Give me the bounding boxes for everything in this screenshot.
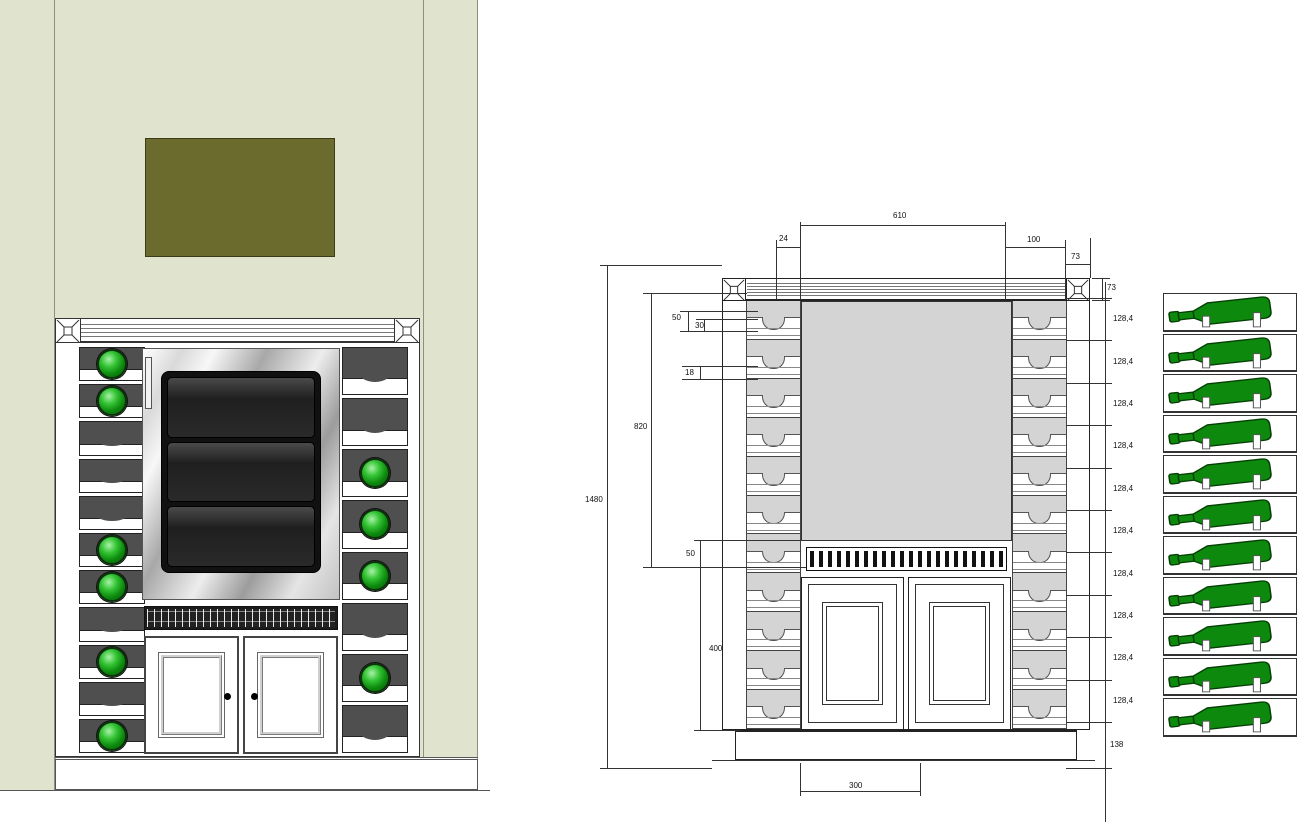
dim-line-overall-height	[607, 265, 608, 768]
rack-support-tab	[1203, 397, 1210, 408]
dim-right-inset: 100	[1027, 235, 1040, 244]
bottle-cradle-profile	[747, 573, 800, 590]
bottle-cradle-profile	[747, 457, 800, 474]
dim-slot-pitch: 128,4	[1113, 484, 1133, 493]
dim-corner-width: 73	[1071, 252, 1080, 261]
dim-line-panel-width	[800, 225, 1005, 226]
dim-extension	[800, 222, 801, 300]
shelf-lines	[1013, 445, 1066, 455]
wine-bottle-side	[1164, 294, 1296, 330]
shelf-lines	[1013, 406, 1066, 416]
rack-slot-profile	[1013, 651, 1066, 690]
rack-support-tab	[1203, 519, 1210, 530]
rack-support-tab	[1253, 637, 1260, 651]
rack-support-tab	[1203, 438, 1210, 449]
wall-panel-line-right	[423, 0, 424, 790]
rack-slot-empty	[342, 705, 408, 753]
dim-extension	[643, 567, 806, 568]
rack-support-tab	[1253, 434, 1260, 448]
dim-extension	[682, 379, 758, 380]
tv-chrome-frame	[142, 348, 340, 600]
drawing-door-right	[908, 577, 1011, 730]
dim-extension	[680, 331, 758, 332]
shelf-lines	[747, 678, 800, 688]
rack-slot-empty	[342, 398, 408, 446]
shelf-lines	[1013, 328, 1066, 338]
dim-extension	[696, 319, 758, 320]
bottle-cradle-profile	[747, 651, 800, 668]
drawing-plinth	[735, 730, 1077, 760]
rack-slot-with-bottle	[342, 449, 408, 497]
bottle-slot	[1163, 617, 1297, 656]
render-right-rack	[342, 347, 408, 753]
dim-tick	[1066, 768, 1112, 769]
wine-bottle-front	[360, 663, 390, 693]
bottle-cradle-profile	[1013, 534, 1066, 551]
dim-tick	[1066, 510, 1112, 511]
dim-panel-width: 610	[893, 211, 906, 220]
bottle-cradle-profile	[1013, 496, 1066, 513]
shelf-lines	[1013, 484, 1066, 494]
shelf-lines	[1013, 523, 1066, 533]
bottle-slot	[1163, 415, 1297, 454]
wine-bottle-front	[360, 458, 390, 488]
drawing-canvas: 610 24 100 73 73 1480 820 50 30 18 50 40…	[0, 0, 1300, 824]
drawing-door-panel	[929, 602, 990, 705]
screen-panel	[167, 377, 315, 438]
dim-detail-18: 18	[685, 368, 694, 377]
rack-support-tab	[1203, 681, 1210, 692]
bottle-cradle-profile	[1013, 612, 1066, 629]
bottle-cradle-profile	[1013, 340, 1066, 357]
cornice	[55, 318, 420, 342]
wine-cabinet-render	[55, 318, 420, 790]
wine-bottle-front	[97, 535, 127, 565]
dim-base-height: 138	[1110, 740, 1123, 749]
rack-slot-with-bottle	[342, 654, 408, 702]
drawing-cornice	[722, 278, 1090, 300]
rack-slot-profile	[1013, 457, 1066, 496]
rack-slot-profile	[747, 573, 800, 612]
dim-line-grille-height	[700, 540, 701, 567]
screen-panel	[167, 506, 315, 567]
door-panel	[158, 652, 225, 738]
rack-support-tab	[1253, 353, 1260, 367]
bottle-slot	[1163, 698, 1297, 737]
dim-corner-height: 73	[1107, 283, 1116, 292]
dim-tick	[1066, 383, 1112, 384]
rack-slot-profile	[1013, 340, 1066, 379]
rack-support-tab	[1203, 722, 1210, 733]
rack-support-tab	[1203, 316, 1210, 327]
rack-slot-profile	[747, 496, 800, 535]
rack-slot-profile	[747, 690, 800, 729]
corner-rosette-icon	[722, 278, 746, 302]
dim-detail-50: 50	[672, 313, 681, 322]
wine-bottle-side	[1164, 416, 1296, 452]
rack-slot-profile	[747, 651, 800, 690]
rack-support-tab	[1253, 394, 1260, 408]
wine-bottle-side	[1164, 375, 1296, 411]
wine-bottle-side	[1164, 699, 1296, 735]
rack-support-tab	[1253, 596, 1260, 610]
rack-slot-empty	[79, 421, 145, 455]
shelf-lines	[747, 406, 800, 416]
rack-support-tab	[1253, 678, 1260, 692]
dim-detail-30: 30	[695, 321, 704, 330]
wine-bottle-side	[1164, 497, 1296, 533]
dim-extension	[1065, 240, 1066, 300]
dim-line-corner-width	[1066, 264, 1090, 265]
bottle-cradle-profile	[1013, 379, 1066, 396]
dim-slot-pitch: 128,4	[1113, 611, 1133, 620]
shelf-lines	[1013, 367, 1066, 377]
dim-slot-pitch: 128,4	[1113, 569, 1133, 578]
dim-tick	[1066, 595, 1112, 596]
dim-line-corner-height	[1102, 278, 1103, 300]
wine-bottle-side	[1164, 659, 1296, 695]
wall-picture	[145, 138, 335, 257]
dim-slot-pitch: 128,4	[1113, 399, 1133, 408]
wine-bottle-front	[97, 721, 127, 751]
drawing-grille-slats	[810, 551, 1003, 567]
rack-slot-with-bottle	[342, 500, 408, 548]
shelf-lines	[747, 523, 800, 533]
wine-bottle-front	[97, 647, 127, 677]
rack-slot-profile	[1013, 534, 1066, 573]
shelf-lines	[747, 717, 800, 727]
rack-slot-with-bottle	[79, 384, 145, 418]
dim-tick	[1066, 552, 1112, 553]
door-knob	[224, 693, 231, 700]
rack-slot-with-bottle	[342, 552, 408, 600]
rack-slot-profile	[1013, 418, 1066, 457]
bottle-cradle-profile	[747, 496, 800, 513]
drawing-door-left	[801, 577, 904, 730]
bottle-cradle-profile	[1013, 651, 1066, 668]
rack-support-tab	[1253, 313, 1260, 327]
rack-slot-profile	[1013, 573, 1066, 612]
dim-extension	[694, 730, 740, 731]
dim-tick	[1066, 340, 1112, 341]
shelf-lines	[1013, 678, 1066, 688]
shelf-lines	[747, 600, 800, 610]
drawing-doors	[801, 577, 1012, 730]
dim-door-width: 300	[849, 781, 862, 790]
floor-line	[0, 790, 490, 791]
rack-slot-empty	[79, 682, 145, 716]
wine-bottle-front	[97, 349, 127, 379]
rack-slot-profile	[1013, 690, 1066, 729]
bottle-cradle-profile	[747, 690, 800, 707]
rack-support-tab	[1253, 515, 1260, 529]
dim-line-right-inset	[1005, 247, 1065, 248]
wine-bottle-side	[1164, 335, 1296, 371]
dim-door-height: 400	[709, 644, 722, 653]
tv-handle	[145, 357, 152, 409]
drawing-cornice-moulding	[747, 281, 1065, 297]
dim-tick	[1066, 637, 1112, 638]
rack-slot-profile	[747, 379, 800, 418]
rack-slot-profile	[1013, 379, 1066, 418]
rack-support-tab	[1203, 600, 1210, 611]
bottle-cradle-profile	[1013, 573, 1066, 590]
rack-slot-empty	[79, 607, 145, 641]
wine-bottle-front	[360, 561, 390, 591]
dim-tick	[1066, 468, 1112, 469]
dim-tick	[1066, 425, 1112, 426]
rack-slot-with-bottle	[79, 570, 145, 604]
dim-extension	[600, 768, 712, 769]
rack-slot-profile	[1013, 301, 1066, 340]
wine-bottle-front	[360, 509, 390, 539]
bottle-cradle-profile	[1013, 418, 1066, 435]
shelf-lines	[747, 367, 800, 377]
rack-slot-empty	[79, 459, 145, 493]
bottle-cradle-profile	[747, 418, 800, 435]
tv-screen	[161, 371, 321, 573]
dim-upper-height: 820	[634, 422, 647, 431]
dim-line-door-width	[800, 791, 920, 792]
dim-tick	[1066, 722, 1112, 723]
door-knob	[251, 693, 258, 700]
dim-extension	[1090, 238, 1091, 278]
rack-support-tab	[1253, 475, 1260, 489]
bottle-slot	[1163, 658, 1297, 697]
dim-line-detail-18	[700, 366, 701, 379]
shelf-lines	[747, 445, 800, 455]
dim-line-detail-30	[704, 319, 705, 331]
dim-overall-height: 1480	[585, 495, 603, 504]
cabinet-body	[55, 342, 420, 757]
bottle-slot	[1163, 293, 1297, 332]
rack-slot-profile	[1013, 496, 1066, 535]
rendered-elevation	[0, 0, 500, 824]
rack-slot-profile	[747, 418, 800, 457]
corner-rosette-icon	[394, 318, 420, 344]
shelf-lines	[747, 484, 800, 494]
bottle-cradle-profile	[1013, 301, 1066, 318]
wine-bottle-side	[1164, 578, 1296, 614]
rack-slot-with-bottle	[79, 719, 145, 753]
shelf-lines	[1013, 562, 1066, 572]
drawing-vent-grille	[806, 547, 1007, 571]
dim-slot-pitch: 128,4	[1113, 314, 1133, 323]
rack-support-tab	[1203, 357, 1210, 368]
corner-rosette-icon	[55, 318, 81, 344]
dim-extension	[776, 240, 777, 300]
render-left-rack	[79, 347, 145, 753]
wine-bottle-side	[1164, 456, 1296, 492]
dim-line-door-height	[700, 567, 701, 730]
dim-line-upper-height	[651, 293, 652, 567]
bottle-slot	[1163, 536, 1297, 575]
dim-extension	[680, 311, 758, 312]
cabinet-door-left	[144, 636, 239, 754]
rack-slot-empty	[342, 603, 408, 651]
rack-slot-with-bottle	[79, 645, 145, 679]
rack-support-tab	[1203, 478, 1210, 489]
drawing-door-panel	[822, 602, 883, 705]
dim-grille-height: 50	[686, 549, 695, 558]
bottle-slot	[1163, 334, 1297, 373]
rack-support-tab	[1203, 559, 1210, 570]
drawing-right-rack	[1012, 301, 1067, 729]
dim-slot-pitch: 128,4	[1113, 357, 1133, 366]
wine-bottle-front	[97, 386, 127, 416]
dim-extension	[920, 763, 921, 796]
dim-extension	[1092, 278, 1110, 279]
dim-extension	[1092, 300, 1110, 301]
shelf-lines	[1013, 639, 1066, 649]
rack-slot-profile	[747, 457, 800, 496]
dim-slot-pitch: 128,4	[1113, 696, 1133, 705]
drawing-cabinet	[722, 278, 1090, 760]
rack-slot-with-bottle	[79, 533, 145, 567]
drawing-baseline	[712, 760, 1095, 761]
bottle-cradle-profile	[1013, 690, 1066, 707]
cornice-moulding	[80, 321, 395, 339]
dim-slot-pitch: 128,4	[1113, 653, 1133, 662]
bottle-cradle-profile	[747, 379, 800, 396]
drawing-tv-opening	[801, 301, 1012, 541]
shelf-lines	[747, 328, 800, 338]
rack-slot-profile	[747, 612, 800, 651]
dim-extension	[643, 293, 747, 294]
rack-support-tab	[1253, 556, 1260, 570]
dim-extension	[600, 265, 722, 266]
dim-line-detail-50	[688, 311, 689, 331]
wine-bottle-side	[1164, 618, 1296, 654]
rack-slot-profile	[747, 301, 800, 340]
cabinet-door-right	[243, 636, 338, 754]
dim-tick	[1066, 298, 1112, 299]
rack-slot-empty	[342, 347, 408, 395]
bottle-cradle-profile	[1013, 457, 1066, 474]
shelf-lines	[1013, 717, 1066, 727]
bottle-cradle-profile	[747, 340, 800, 357]
rack-slot-empty	[79, 496, 145, 530]
dim-left-gap: 24	[779, 234, 788, 243]
dim-tick	[1066, 680, 1112, 681]
dim-slot-pitch: 128,4	[1113, 526, 1133, 535]
rack-support-tab	[1203, 641, 1210, 652]
cabinet-doors	[144, 636, 338, 754]
bottle-rack-detail	[1163, 293, 1297, 737]
shelf-lines	[1013, 600, 1066, 610]
bottle-cradle-profile	[747, 612, 800, 629]
bottle-cradle-profile	[747, 301, 800, 318]
dim-slot-pitch: 128,4	[1113, 441, 1133, 450]
dim-line-left-gap	[776, 247, 800, 248]
rack-slot-profile	[747, 340, 800, 379]
bottle-slot	[1163, 374, 1297, 413]
bottle-slot	[1163, 496, 1297, 535]
wine-bottle-front	[97, 572, 127, 602]
dim-extension	[682, 366, 758, 367]
drawing-cabinet-body	[722, 300, 1090, 730]
rack-slot-with-bottle	[79, 347, 145, 381]
bottle-cradle-profile	[747, 534, 800, 551]
dim-extension	[694, 540, 806, 541]
bottle-slot	[1163, 577, 1297, 616]
plinth	[55, 757, 478, 790]
shelf-lines	[747, 639, 800, 649]
vent-grille	[144, 606, 338, 630]
rack-slot-profile	[1013, 612, 1066, 651]
dim-extension	[1005, 222, 1006, 300]
wine-bottle-side	[1164, 537, 1296, 573]
bottle-slot	[1163, 455, 1297, 494]
screen-panel	[167, 442, 315, 503]
door-panel	[257, 652, 324, 738]
vent-grille-slats	[147, 609, 335, 627]
rack-support-tab	[1253, 718, 1260, 732]
